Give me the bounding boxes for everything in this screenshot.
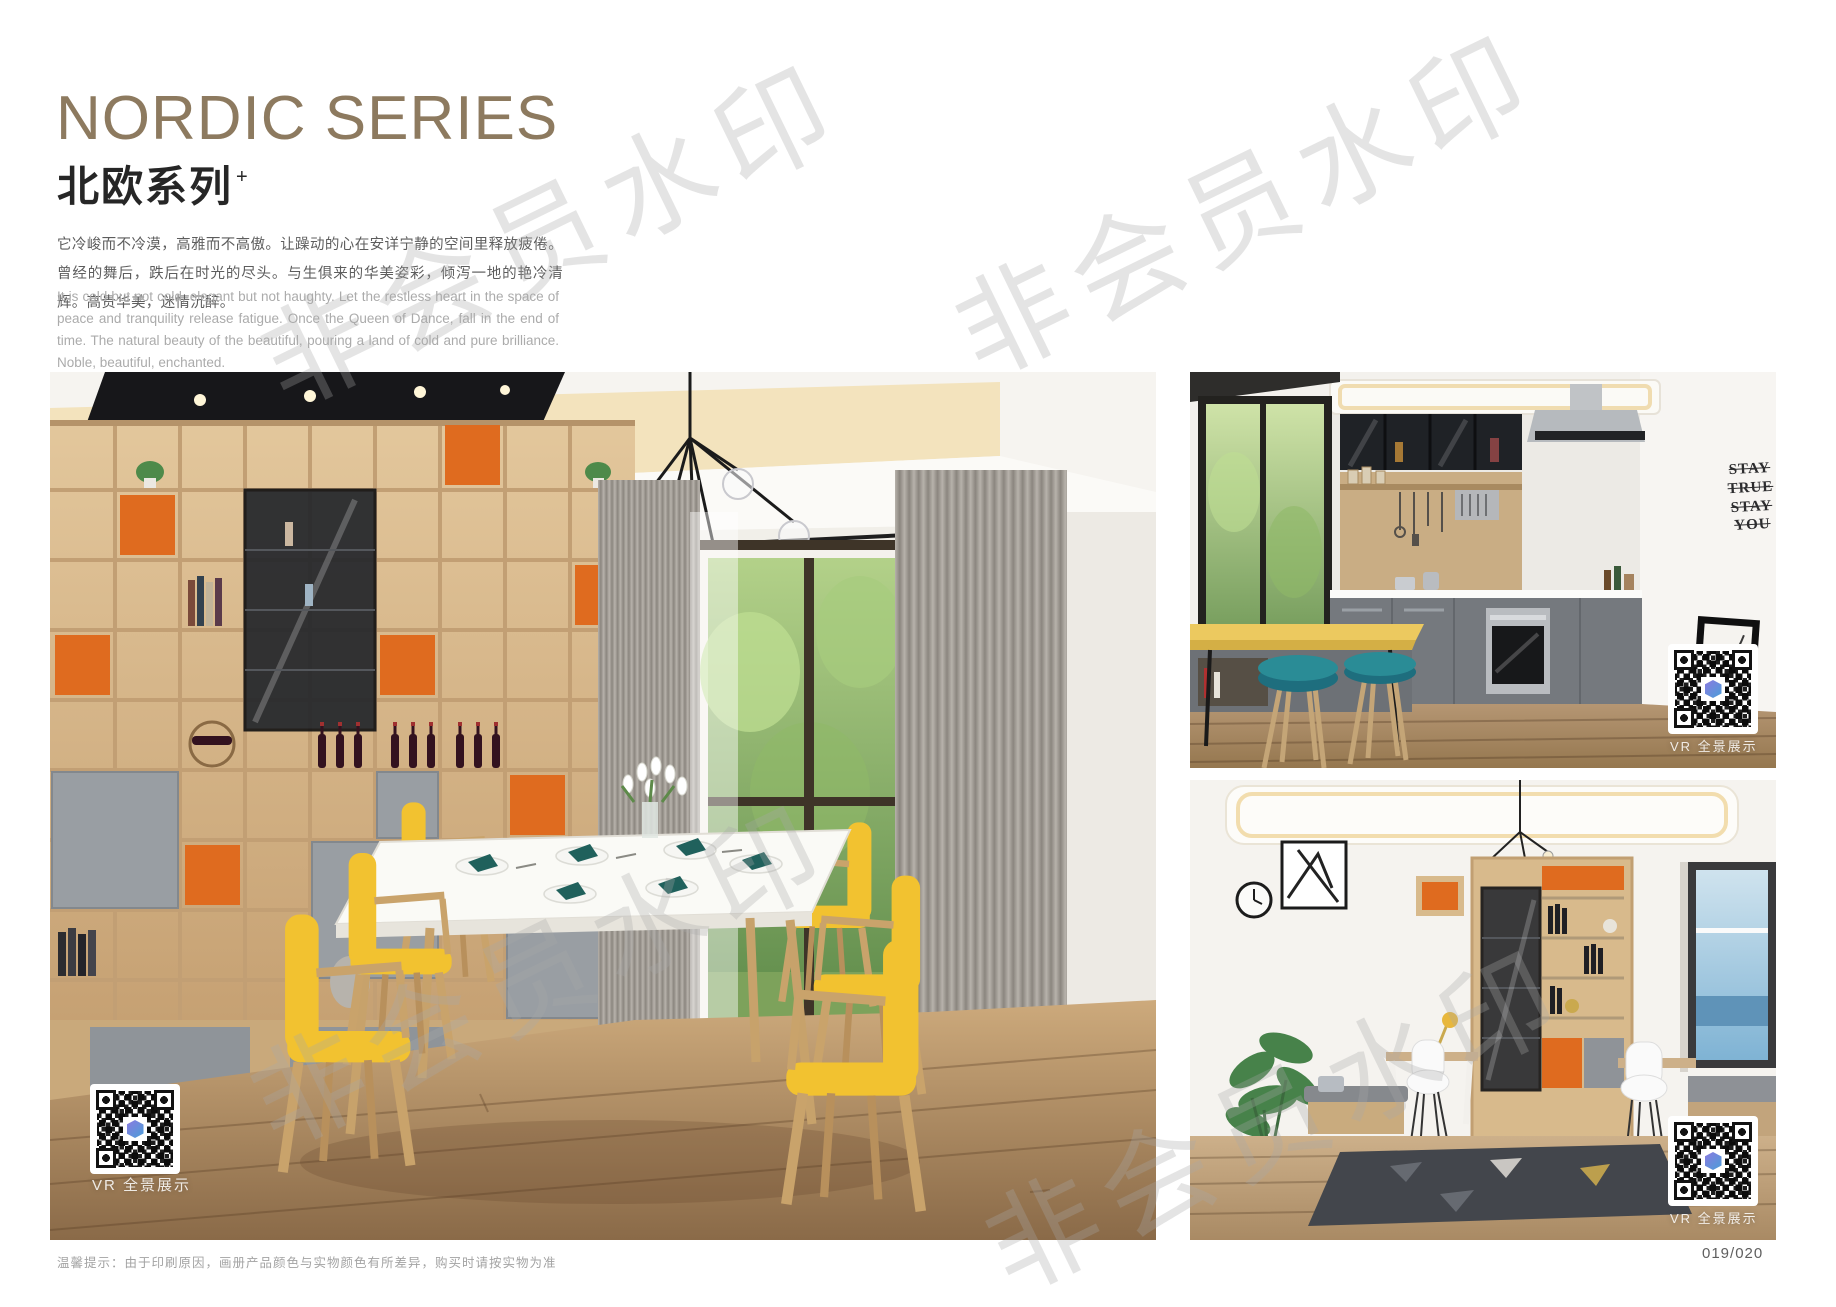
qr-cube-logo-icon (1701, 677, 1725, 701)
qr-code (90, 1084, 180, 1174)
wall-decal-text: STAY TRUE STAY YOU (1724, 459, 1776, 537)
qr-cube-logo-icon (1701, 1149, 1725, 1173)
wall-decal-line: TRUE (1725, 477, 1776, 498)
study-room-photo: VR 全景展示 (1190, 780, 1776, 1240)
footer-disclaimer: 温馨提示：由于印刷原因，画册产品颜色与实物颜色有所差异，购买时请按实物为准 (57, 1252, 557, 1271)
qr-cube-logo-icon (123, 1117, 147, 1141)
dining-room-photo: VR 全景展示 (50, 372, 1156, 1240)
wall-decal-line: YOU (1727, 515, 1776, 536)
wall-decal-line: STAY (1724, 459, 1775, 480)
description-english: It is cold but not cold, elegant but not… (57, 286, 559, 374)
page-number: 019/020 (1702, 1245, 1763, 1262)
catalog-page: NORDIC SERIES 北欧系列+ 它冷峻而不冷漠，高雅而不高傲。让躁动的心… (0, 0, 1836, 1307)
page-subtitle-cn: 北欧系列+ (57, 166, 250, 208)
page-title: NORDIC SERIES (56, 88, 558, 150)
watermark: 非会员水印 (924, 0, 1561, 409)
qr-code (1668, 644, 1758, 734)
kitchen-photo: STAY TRUE STAY YOU VR 全景展示 (1190, 372, 1776, 768)
vr-panorama-label: VR 全景展示 (1670, 1208, 1758, 1227)
dining-room-illustration (50, 372, 1156, 1240)
vr-panorama-label: VR 全景展示 (92, 1174, 191, 1195)
vr-panorama-label: VR 全景展示 (1670, 736, 1758, 755)
qr-code (1668, 1116, 1758, 1206)
subtitle-text: 北欧系列 (57, 163, 233, 210)
subtitle-plus: + (236, 166, 250, 188)
